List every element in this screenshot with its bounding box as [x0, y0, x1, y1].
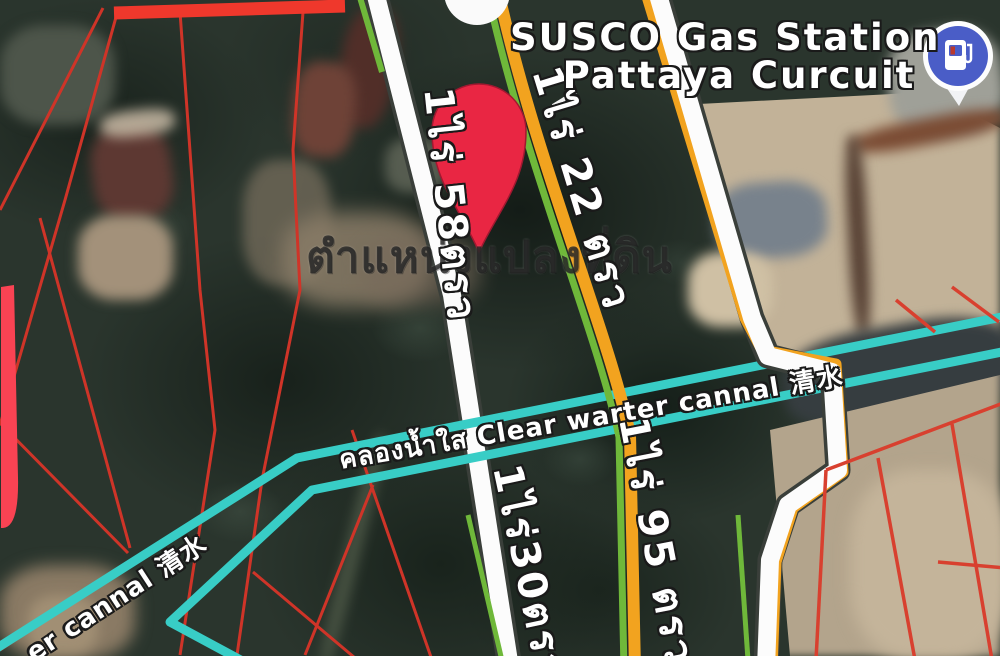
poi-name-line1[interactable]: SUSCO Gas Station	[510, 16, 928, 59]
poi-name-line2[interactable]: Pattaya Curcuit	[548, 54, 930, 97]
pump-red-mark	[951, 47, 956, 55]
parcel-boundary-line	[0, 10, 118, 425]
parcel-boundary-line	[0, 8, 103, 210]
parcel-boundary-line	[952, 287, 999, 322]
parcel-boundary-line	[40, 218, 130, 548]
boundary-highlight-bar-top	[114, 6, 345, 13]
parcel-boundary-line	[896, 300, 935, 332]
parcel-boundary-line	[938, 562, 1000, 568]
parcel-boundary-line	[253, 572, 355, 656]
parcel-boundary-line	[0, 423, 128, 553]
parcel-boundary-lines-left	[0, 8, 432, 656]
parcel-boundary-line	[237, 12, 303, 655]
boundary-highlight-bar-left	[1, 285, 18, 528]
parcel-boundary-line	[305, 485, 373, 655]
satellite-map[interactable]: ตำแหน่งแปลงที่ดิน 1ไร่ 58ตรว 1ไร่ 22 ตรว…	[0, 0, 1000, 656]
green-boundary-line	[738, 515, 748, 656]
parcel-boundary-line	[878, 458, 915, 656]
parcel-boundary-line	[826, 402, 1000, 470]
parcel-boundary-line	[952, 424, 992, 656]
